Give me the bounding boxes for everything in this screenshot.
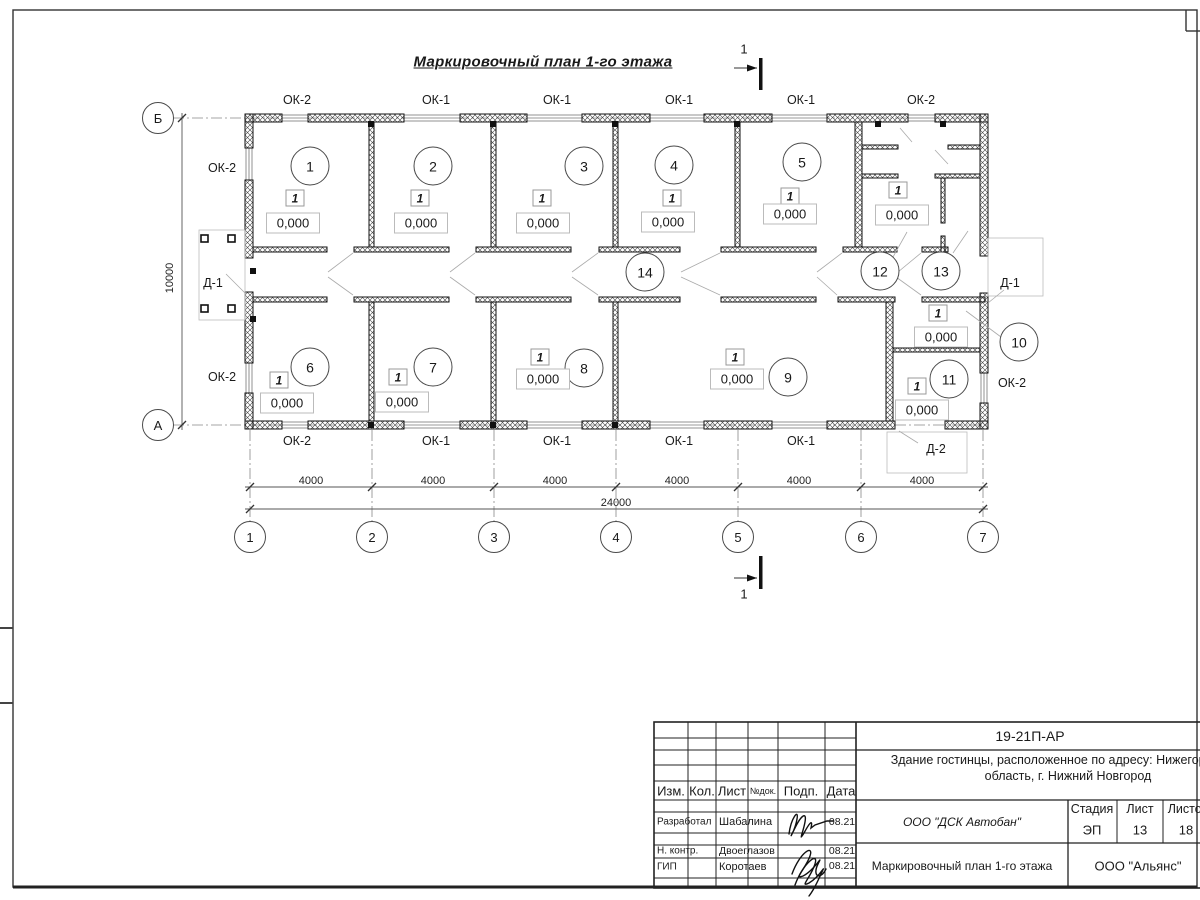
dimension-lines [178,58,988,589]
signatures [789,814,833,896]
drawing-sheet: Маркировочный план 1-го этажа 1234567891… [0,0,1200,900]
axis-lines [173,118,988,522]
floor-plan-drawing [0,0,1200,900]
sheet-frame-and-titleblock-lines [0,10,1200,888]
walls [245,114,988,429]
